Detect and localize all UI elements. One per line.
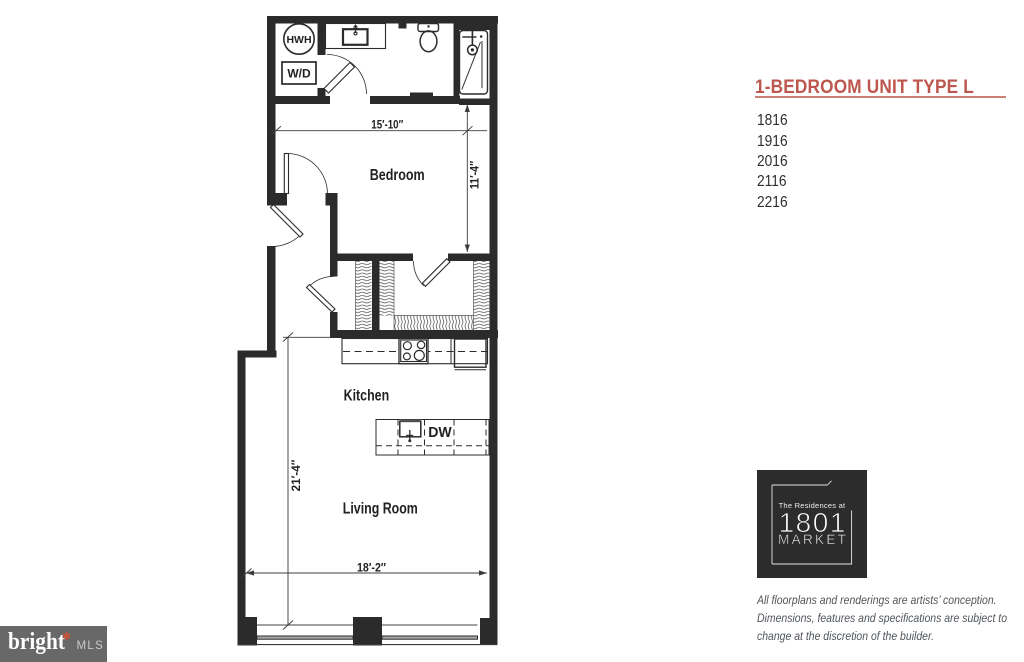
svg-text:18′-2″: 18′-2″ — [357, 562, 386, 574]
svg-text:Kitchen: Kitchen — [344, 388, 390, 405]
svg-text:11′-4″: 11′-4″ — [469, 160, 481, 189]
svg-text:HWH: HWH — [286, 34, 311, 46]
svg-text:DW: DW — [428, 425, 452, 441]
svg-text:21′-4″: 21′-4″ — [291, 459, 303, 491]
svg-text:Bedroom: Bedroom — [370, 167, 425, 184]
svg-text:Living Room: Living Room — [343, 500, 418, 517]
svg-text:W/D: W/D — [287, 67, 311, 81]
svg-text:15′-10″: 15′-10″ — [371, 119, 403, 131]
